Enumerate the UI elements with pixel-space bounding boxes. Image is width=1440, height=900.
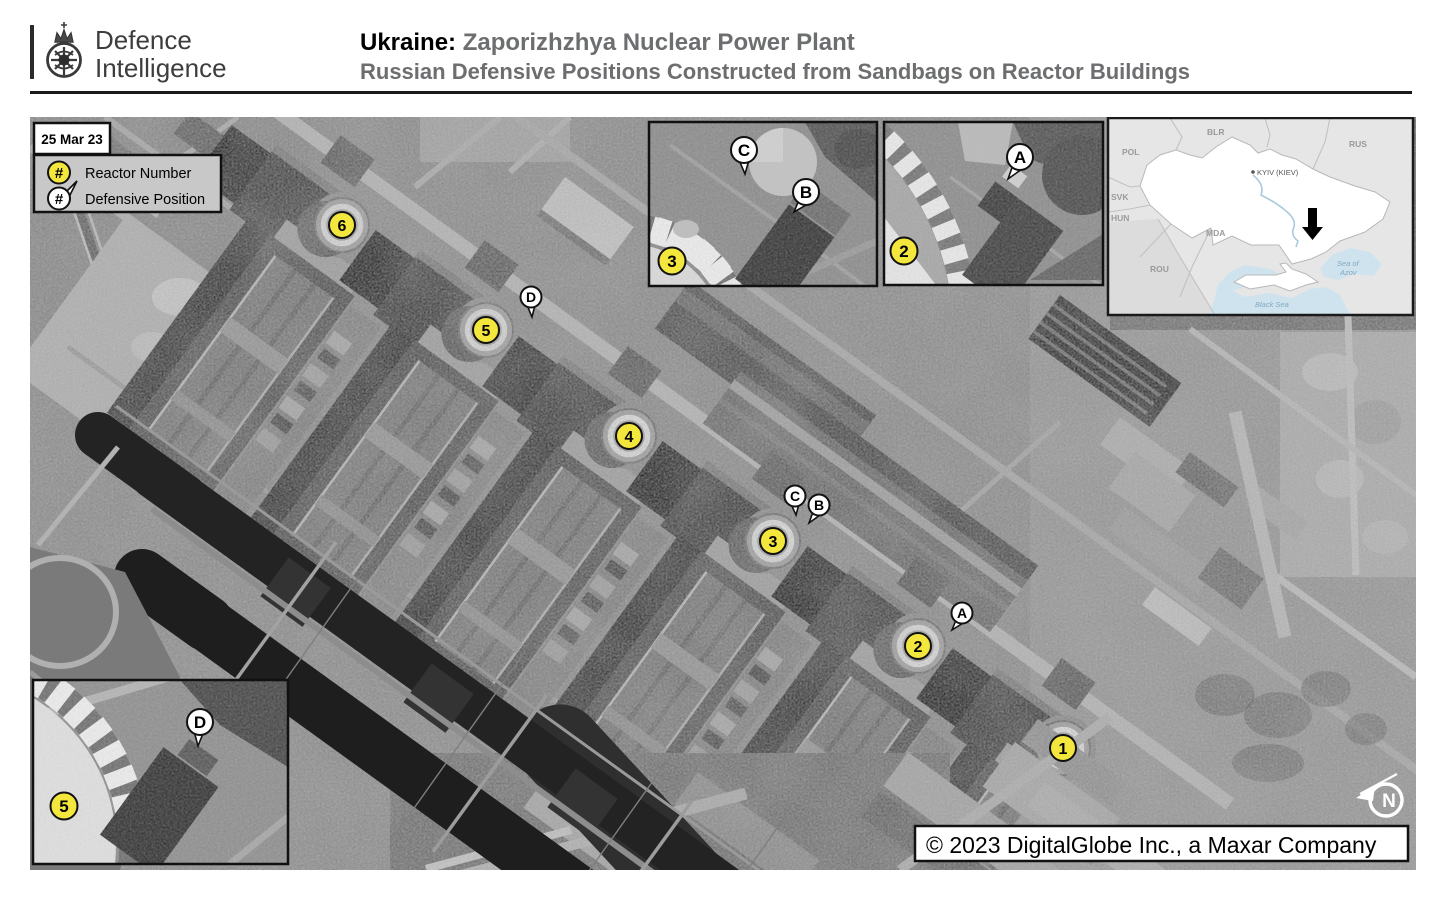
svg-text:Black Sea: Black Sea [1255, 300, 1289, 309]
svg-text:4: 4 [625, 429, 634, 446]
svg-text:25 Mar 23: 25 Mar 23 [41, 132, 103, 147]
svg-text:D: D [526, 289, 536, 305]
svg-text:Reactor Number: Reactor Number [85, 166, 192, 182]
svg-text:Azov: Azov [1339, 268, 1358, 277]
svg-text:Defensive Position: Defensive Position [85, 192, 205, 208]
svg-text:2: 2 [914, 639, 923, 656]
svg-text:POL: POL [1122, 147, 1139, 157]
svg-text:3: 3 [769, 534, 778, 551]
svg-text:KYIV (KIEV): KYIV (KIEV) [1257, 168, 1299, 177]
svg-text:MDA: MDA [1206, 228, 1225, 238]
svg-text:SVK: SVK [1111, 192, 1129, 202]
svg-text:Sea of: Sea of [1337, 259, 1360, 268]
svg-text:3: 3 [667, 252, 676, 271]
svg-text:B: B [800, 183, 812, 202]
svg-text:5: 5 [482, 323, 491, 340]
svg-text:C: C [790, 488, 800, 504]
svg-text:A: A [1014, 148, 1026, 167]
svg-text:1: 1 [1059, 741, 1068, 758]
svg-text:© 2023 DigitalGlobe Inc., a Ma: © 2023 DigitalGlobe Inc., a Maxar Compan… [926, 832, 1377, 858]
svg-text:#: # [55, 191, 64, 208]
svg-text:ROU: ROU [1150, 264, 1169, 274]
svg-text:A: A [957, 605, 967, 621]
svg-text:RUS: RUS [1349, 139, 1367, 149]
svg-text:C: C [738, 141, 750, 160]
svg-text:HUN: HUN [1111, 213, 1129, 223]
svg-text:D: D [194, 713, 206, 732]
svg-text:#: # [55, 165, 64, 182]
svg-text:2: 2 [899, 242, 908, 261]
svg-text:6: 6 [338, 218, 347, 235]
svg-text:N: N [1382, 791, 1396, 812]
svg-text:B: B [814, 497, 824, 513]
svg-text:5: 5 [59, 797, 68, 816]
svg-text:BLR: BLR [1207, 127, 1224, 137]
